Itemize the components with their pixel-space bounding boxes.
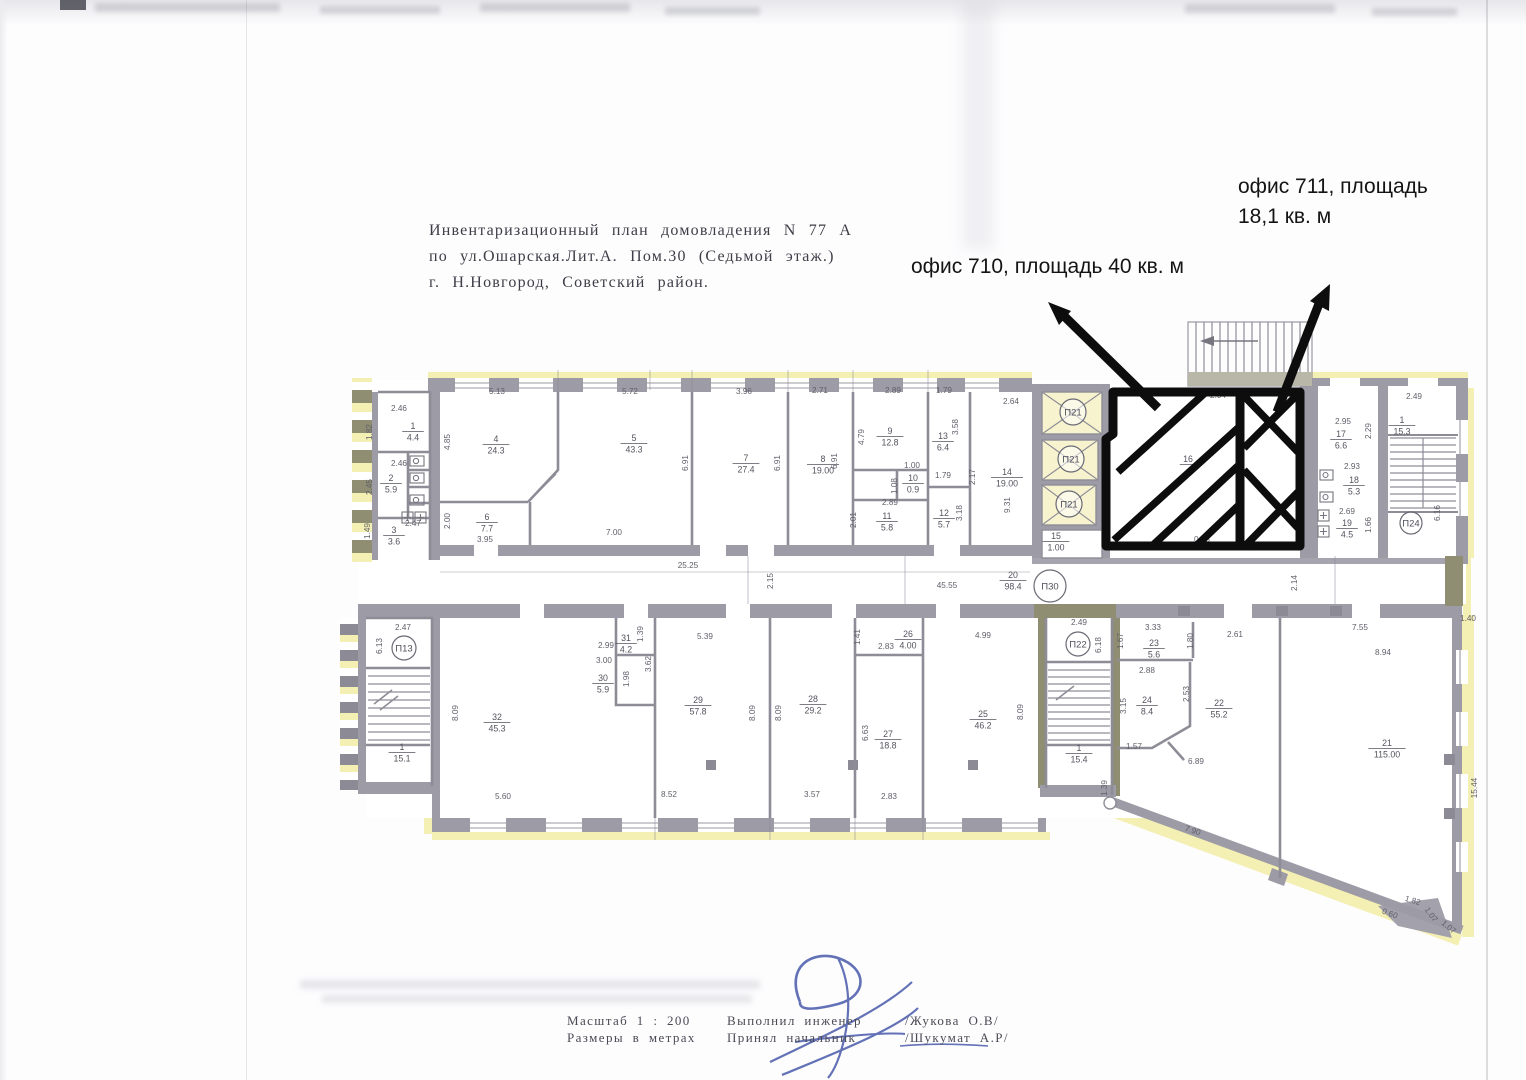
svg-text:6.4: 6.4	[937, 443, 949, 453]
dim-label: 1.82	[365, 424, 374, 440]
svg-text:П21: П21	[1064, 408, 1081, 419]
dim-label: 2.69	[1339, 507, 1355, 516]
dim-label: 15.44	[1470, 777, 1479, 798]
dim-label: 2.01	[849, 512, 858, 528]
dim-label: 6.18	[1094, 637, 1103, 653]
svg-text:8.4: 8.4	[1141, 707, 1153, 717]
svg-text:П21: П21	[1060, 500, 1077, 511]
dim-label: 2.53	[1182, 686, 1191, 702]
svg-text:5.8: 5.8	[881, 523, 893, 533]
svg-text:45.3: 45.3	[488, 724, 505, 734]
dim-label: 5.60	[495, 792, 511, 801]
dim-label: 3.58	[951, 419, 960, 435]
svg-text:5: 5	[632, 433, 637, 443]
dim-label: 2.88	[1139, 666, 1155, 675]
dim-label: 6.63	[861, 725, 870, 741]
svg-text:П30: П30	[1041, 582, 1058, 593]
svg-text:1: 1	[1077, 743, 1082, 753]
svg-text:5.6: 5.6	[1148, 650, 1160, 660]
svg-text:115.00: 115.00	[1374, 750, 1400, 760]
dim-label: 1.40	[1460, 614, 1476, 623]
dim-label: 2.83	[878, 642, 894, 651]
footer-signature-block: Выполнил инженер /Жукова О.В/ Принял нач…	[727, 1012, 862, 1046]
dim-label: 5.39	[697, 632, 713, 641]
shaft-label-П21: П21	[1056, 491, 1082, 517]
dim-label: 2.46	[391, 459, 407, 468]
svg-text:29.2: 29.2	[804, 706, 821, 716]
dim-label: 6.91	[773, 455, 782, 471]
accepted-by-label: Принял начальник	[727, 1030, 856, 1045]
svg-text:24.3: 24.3	[487, 446, 504, 456]
dim-label: 5.72	[622, 387, 638, 396]
svg-text:0.9: 0.9	[907, 485, 919, 495]
scanned-floor-plan-page: Инвентаризационный план домовладения N 7…	[0, 0, 1526, 1080]
dim-label: 8.09	[451, 705, 460, 721]
svg-text:17: 17	[1336, 429, 1346, 439]
svg-text:26: 26	[903, 629, 913, 639]
footer-scale-block: Масштаб 1 : 200 Размеры в метрах	[567, 1012, 696, 1046]
dim-label: 2.49	[1071, 618, 1087, 627]
dim-label: 4.79	[857, 429, 866, 445]
svg-text:6.6: 6.6	[1335, 441, 1347, 451]
svg-text:5.7: 5.7	[938, 520, 950, 530]
dim-label: 3.15	[1119, 698, 1128, 714]
svg-text:13: 13	[938, 431, 948, 441]
dim-label: 2.49	[1406, 392, 1422, 401]
dim-label: 7.00	[606, 528, 622, 537]
dim-label: 2.95	[1335, 417, 1351, 426]
dim-label: 2.99	[598, 641, 614, 650]
svg-text:6: 6	[485, 512, 490, 522]
svg-text:19: 19	[1342, 518, 1352, 528]
svg-text:98.4: 98.4	[1004, 582, 1021, 592]
svg-text:1: 1	[411, 421, 416, 431]
dim-label: 2.47	[405, 519, 421, 528]
dim-label: 1.79	[935, 471, 951, 480]
dim-label: 8.09	[774, 705, 783, 721]
svg-text:2: 2	[389, 473, 394, 483]
svg-text:9: 9	[888, 426, 893, 436]
svg-text:10: 10	[908, 473, 918, 483]
svg-text:46.2: 46.2	[974, 721, 991, 731]
svg-text:4.2: 4.2	[620, 645, 632, 655]
svg-text:32: 32	[492, 712, 502, 722]
dim-label: 6.13	[375, 638, 384, 654]
svg-text:1: 1	[400, 742, 405, 752]
dim-label: 6.91	[681, 455, 690, 471]
svg-text:19.00: 19.00	[812, 466, 834, 476]
svg-text:7: 7	[744, 453, 749, 463]
svg-text:15: 15	[1051, 531, 1061, 541]
shaft-label-П22: П22	[1066, 632, 1090, 656]
dim-label: 3.33	[1145, 623, 1161, 632]
scale-text: Масштаб 1 : 200	[567, 1012, 696, 1029]
svg-text:11: 11	[882, 511, 891, 521]
dim-label: 2.15	[766, 573, 775, 589]
floor-plan: 5.135.723.962.712.891.792.642.461.822.46…	[0, 0, 1526, 1080]
svg-text:12: 12	[939, 508, 949, 518]
dim-label: 1.39	[1100, 780, 1109, 796]
svg-text:25: 25	[978, 709, 988, 719]
svg-text:4.5: 4.5	[1341, 530, 1353, 540]
dim-label: 1.41	[853, 629, 862, 645]
svg-text:5.9: 5.9	[385, 485, 397, 495]
dim-label: 45.55	[937, 581, 958, 590]
dim-label: 3.57	[804, 790, 820, 799]
dim-label: 2.46	[391, 404, 407, 413]
dim-label: 1.79	[936, 386, 952, 395]
dim-label: 5.13	[489, 387, 505, 396]
svg-text:П22: П22	[1069, 640, 1086, 651]
shaft-label-П30: П30	[1034, 570, 1066, 602]
dim-label: 2.93	[1344, 462, 1360, 471]
svg-text:55.2: 55.2	[1210, 710, 1227, 720]
svg-text:3: 3	[392, 525, 397, 535]
svg-text:30: 30	[598, 673, 608, 683]
dim-label: 1.39	[636, 626, 645, 642]
svg-text:15.4: 15.4	[1070, 755, 1087, 765]
dim-label: 2.17	[968, 469, 977, 485]
shaft-label-П24: П24	[1400, 512, 1422, 534]
svg-text:24: 24	[1142, 695, 1152, 705]
svg-text:29: 29	[693, 695, 703, 705]
accepted-by-name: /Шукумат А.Р/	[905, 1029, 1009, 1046]
svg-text:8: 8	[821, 454, 826, 464]
svg-text:4.4: 4.4	[407, 433, 419, 443]
column-marker	[1104, 797, 1116, 809]
dim-label: 4.99	[975, 631, 991, 640]
dim-label: 9.31	[1003, 497, 1012, 513]
dim-label: 2.89	[885, 386, 901, 395]
dim-label: 1.00	[904, 461, 920, 470]
svg-text:14: 14	[1002, 467, 1012, 477]
dim-label: 2.71	[812, 386, 828, 395]
dim-label: 1.67	[1116, 633, 1125, 649]
dim-label: 2.83	[881, 792, 897, 801]
svg-text:18: 18	[1349, 475, 1359, 485]
units-text: Размеры в метрах	[567, 1029, 696, 1046]
dim-label: 6.16	[1433, 505, 1442, 521]
dim-label: 8.94	[1375, 648, 1391, 657]
svg-text:П21: П21	[1062, 455, 1079, 466]
svg-text:43.3: 43.3	[625, 445, 642, 455]
dim-label: 1.49	[363, 523, 372, 539]
svg-text:3.6: 3.6	[388, 537, 400, 547]
svg-text:5.9: 5.9	[597, 685, 609, 695]
svg-text:27: 27	[883, 729, 893, 739]
performed-by-label: Выполнил инженер	[727, 1013, 862, 1028]
dim-label: 3.18	[955, 505, 964, 521]
performed-by-name: /Жукова О.В/	[905, 1012, 999, 1029]
svg-text:1.00: 1.00	[1047, 543, 1064, 553]
svg-text:7.7: 7.7	[481, 524, 493, 534]
dim-label: 3.96	[736, 387, 752, 396]
shaft-label-П21: П21	[1060, 399, 1086, 425]
dim-label: 2.14	[1290, 575, 1299, 591]
svg-text:22: 22	[1214, 698, 1224, 708]
dim-label: 8.09	[1016, 704, 1025, 720]
svg-text:12.8: 12.8	[881, 438, 898, 448]
dim-label: 1.98	[622, 671, 631, 687]
dim-label: 2.47	[395, 623, 411, 632]
dim-label: 1.80	[1186, 633, 1195, 649]
svg-text:4: 4	[494, 434, 499, 444]
svg-text:15.1: 15.1	[393, 754, 410, 764]
svg-text:20: 20	[1008, 570, 1018, 580]
svg-text:П13: П13	[395, 644, 412, 655]
dim-label: 8.52	[661, 790, 677, 799]
dim-label: 1.66	[1364, 517, 1373, 533]
dim-label: 1.57	[1126, 742, 1142, 751]
dim-label: 2.29	[1364, 423, 1373, 439]
svg-text:П24: П24	[1402, 519, 1419, 530]
svg-text:21: 21	[1382, 738, 1392, 748]
dim-label: 25.25	[678, 561, 699, 570]
svg-text:4.00: 4.00	[899, 641, 916, 651]
svg-text:15.3: 15.3	[1393, 427, 1410, 437]
dim-label: 7.55	[1352, 623, 1368, 632]
shaft-label-П21: П21	[1058, 446, 1084, 472]
performed-by-row: Выполнил инженер /Жукова О.В/	[727, 1012, 862, 1029]
svg-text:23: 23	[1149, 638, 1159, 648]
svg-text:28: 28	[808, 694, 818, 704]
svg-text:5.3: 5.3	[1348, 487, 1360, 497]
svg-text:27.4: 27.4	[737, 465, 754, 475]
svg-text:18.8: 18.8	[879, 741, 896, 751]
dim-label: 8.09	[748, 705, 757, 721]
dim-label: 4.85	[443, 434, 452, 450]
dim-label: 3.62	[644, 656, 653, 672]
dim-label: 1.08	[890, 478, 899, 494]
dim-label: 3.00	[596, 656, 612, 665]
dim-label: 2.89	[882, 498, 898, 507]
svg-text:16: 16	[1183, 454, 1193, 464]
dim-label: 2.00	[443, 513, 452, 529]
svg-text:31: 31	[621, 633, 631, 643]
shaft-label-П13: П13	[392, 636, 416, 660]
dim-label: 2.45	[365, 479, 374, 495]
accepted-by-row: Принял начальник /Шукумат А.Р/	[727, 1029, 862, 1046]
dim-label: 6.89	[1188, 757, 1204, 766]
dim-label: 2.64	[1003, 397, 1019, 406]
dim-label: 2.61	[1227, 630, 1243, 639]
svg-text:1: 1	[1400, 415, 1405, 425]
svg-text:57.8: 57.8	[689, 707, 706, 717]
svg-text:19.00: 19.00	[996, 479, 1018, 489]
dim-label: 3.95	[477, 535, 493, 544]
